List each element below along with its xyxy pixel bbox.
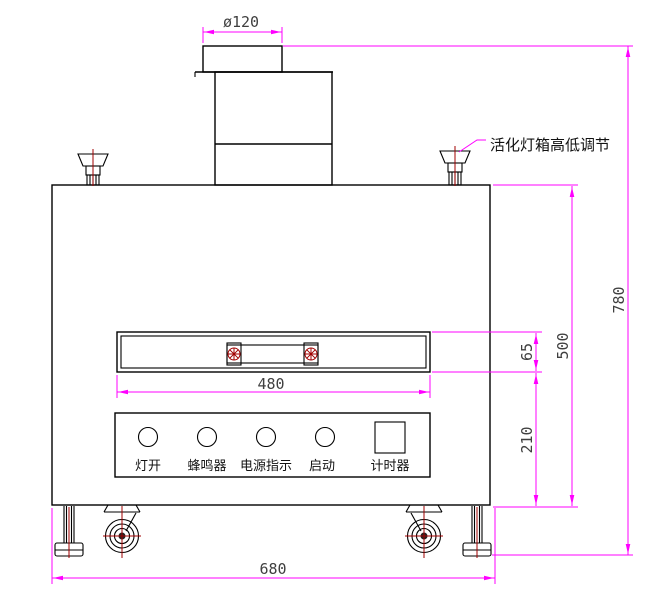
- screw-symbol-right: [305, 348, 317, 360]
- dim-total-height: 780: [283, 46, 633, 555]
- lamp-house-body: [215, 72, 332, 185]
- drawing-page: 灯开 蜂鸣器 电源指示 启动 计时器: [0, 0, 646, 610]
- arrowhead: [570, 495, 575, 505]
- technical-drawing-canvas: 灯开 蜂鸣器 电源指示 启动 计时器: [0, 0, 646, 610]
- leader-line: [459, 140, 486, 152]
- timer-display: [375, 422, 405, 453]
- panel-label-power-indicator: 电源指示: [240, 459, 292, 474]
- note-label: 活化灯箱高低调节: [490, 136, 610, 154]
- cap-outline: [203, 46, 282, 72]
- power-indicator-light: [257, 428, 276, 447]
- dim-window-height: 65: [432, 332, 542, 372]
- dim-label-window-height: 65: [518, 343, 536, 361]
- arrowhead: [534, 374, 539, 384]
- arrowhead: [626, 544, 631, 554]
- chimney-cap: [203, 46, 282, 72]
- height-adjust-knob-right: [440, 146, 470, 186]
- leveling-foot-right: [463, 506, 491, 558]
- lamp-on-switch: [139, 428, 158, 447]
- leveling-foot-left: [55, 506, 83, 558]
- dim-label-top-diameter: ø120: [223, 13, 259, 31]
- arrowhead: [118, 390, 128, 395]
- dim-label-lower-section-height: 210: [518, 426, 536, 453]
- specimen-window: [117, 332, 430, 372]
- arrowhead: [534, 495, 539, 505]
- arrowhead: [419, 390, 429, 395]
- arrowhead: [53, 576, 63, 581]
- height-adjust-knob-left: [78, 149, 108, 186]
- dim-label-total-width: 680: [259, 560, 286, 578]
- arrowhead: [570, 187, 575, 197]
- panel-label-timer: 计时器: [370, 459, 409, 474]
- knob-note: 活化灯箱高低调节: [459, 136, 610, 154]
- lamp-house: [195, 72, 333, 185]
- caster-wheel-left: [103, 505, 141, 558]
- buzzer-indicator: [198, 428, 217, 447]
- arrowhead: [271, 30, 281, 35]
- dim-window-width: 480: [117, 375, 430, 398]
- arrowhead: [484, 576, 494, 581]
- arrowhead: [626, 47, 631, 57]
- start-button: [316, 428, 335, 447]
- dim-label-total-height: 780: [610, 286, 628, 313]
- caster-wheel-right: [405, 505, 443, 558]
- panel-label-lamp-on: 灯开: [135, 459, 161, 474]
- dim-top-diameter: ø120: [203, 13, 282, 43]
- arrowhead: [534, 334, 539, 344]
- panel-label-buzzer: 蜂鸣器: [187, 458, 226, 474]
- dim-label-upper-body-height: 500: [554, 332, 572, 359]
- arrowhead: [204, 30, 214, 35]
- dim-label-window-width: 480: [257, 375, 284, 393]
- screw-symbol-left: [228, 348, 240, 360]
- window-outer-frame: [117, 332, 430, 372]
- control-panel: 灯开 蜂鸣器 电源指示 启动 计时器: [115, 413, 430, 477]
- panel-label-start: 启动: [309, 459, 335, 474]
- dim-lower-section-height: 210: [518, 373, 538, 506]
